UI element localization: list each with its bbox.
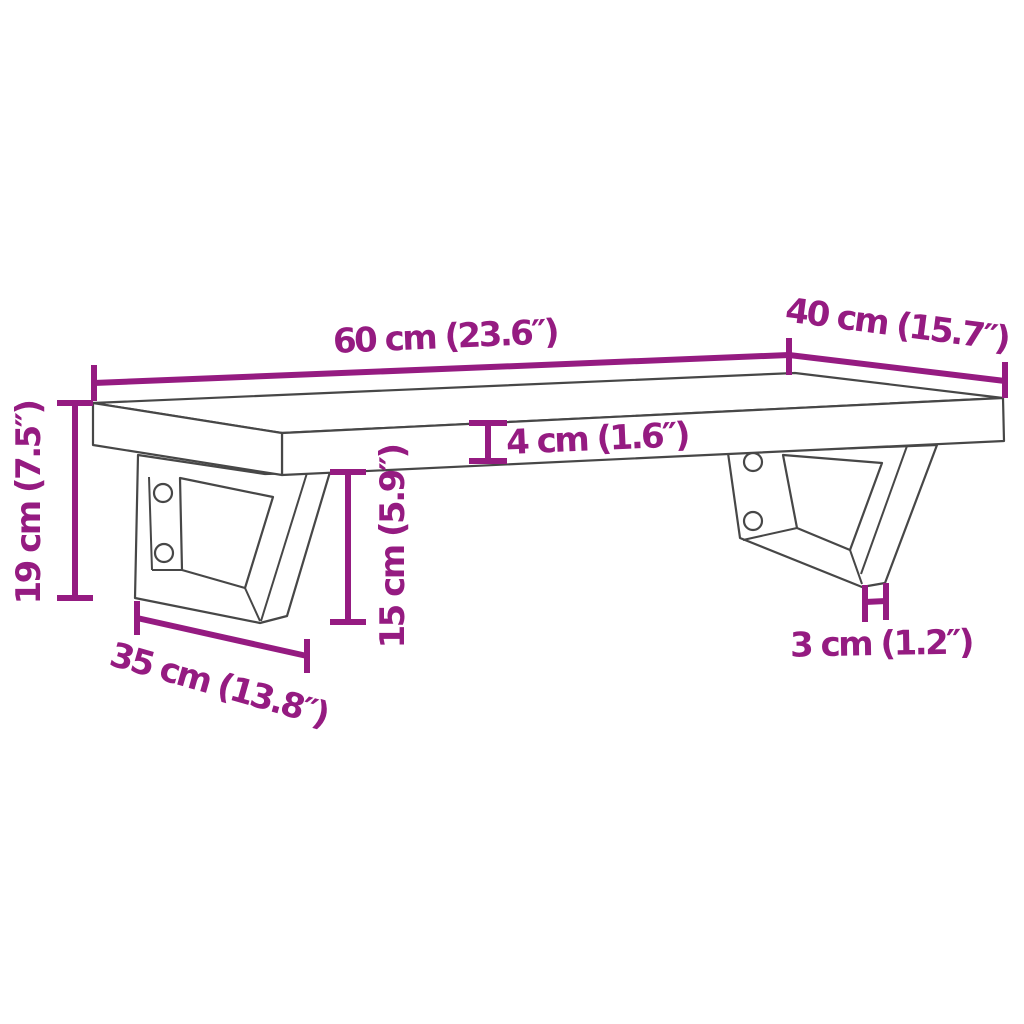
dim-bracket-foot-label: 3 cm (1.2″) bbox=[790, 622, 973, 665]
screw-hole-icon bbox=[744, 453, 762, 471]
dim-depth-label: 40 cm (15.7″) bbox=[783, 291, 1011, 360]
dim-thickness-label: 4 cm (1.6″) bbox=[505, 415, 688, 463]
dim-bracket-height-label: 15 cm (5.9″) bbox=[373, 445, 413, 648]
screw-hole-icon bbox=[154, 484, 172, 502]
left-bracket bbox=[135, 455, 330, 623]
dim-overall-height: 19 cm (7.5″) bbox=[9, 401, 93, 604]
right-bracket bbox=[728, 445, 937, 587]
shelf-dimension-drawing: 60 cm (23.6″) 40 cm (15.7″) 4 cm (1.6″) … bbox=[0, 0, 1024, 1024]
dim-bracket-height: 15 cm (5.9″) bbox=[330, 445, 413, 648]
dimension-diagram: 60 cm (23.6″) 40 cm (15.7″) 4 cm (1.6″) … bbox=[0, 0, 1024, 1024]
screw-hole-icon bbox=[744, 512, 762, 530]
dim-width-label: 60 cm (23.6″) bbox=[332, 312, 558, 362]
dim-bracket-foot-crossbar bbox=[865, 601, 886, 602]
dim-bracket-depth: 35 cm (13.8″) bbox=[105, 601, 332, 735]
screw-hole-icon bbox=[155, 544, 173, 562]
dim-bracket-foot: 3 cm (1.2″) bbox=[790, 583, 973, 666]
dim-bracket-depth-label: 35 cm (13.8″) bbox=[105, 635, 332, 735]
dim-overall-height-label: 19 cm (7.5″) bbox=[9, 401, 49, 604]
